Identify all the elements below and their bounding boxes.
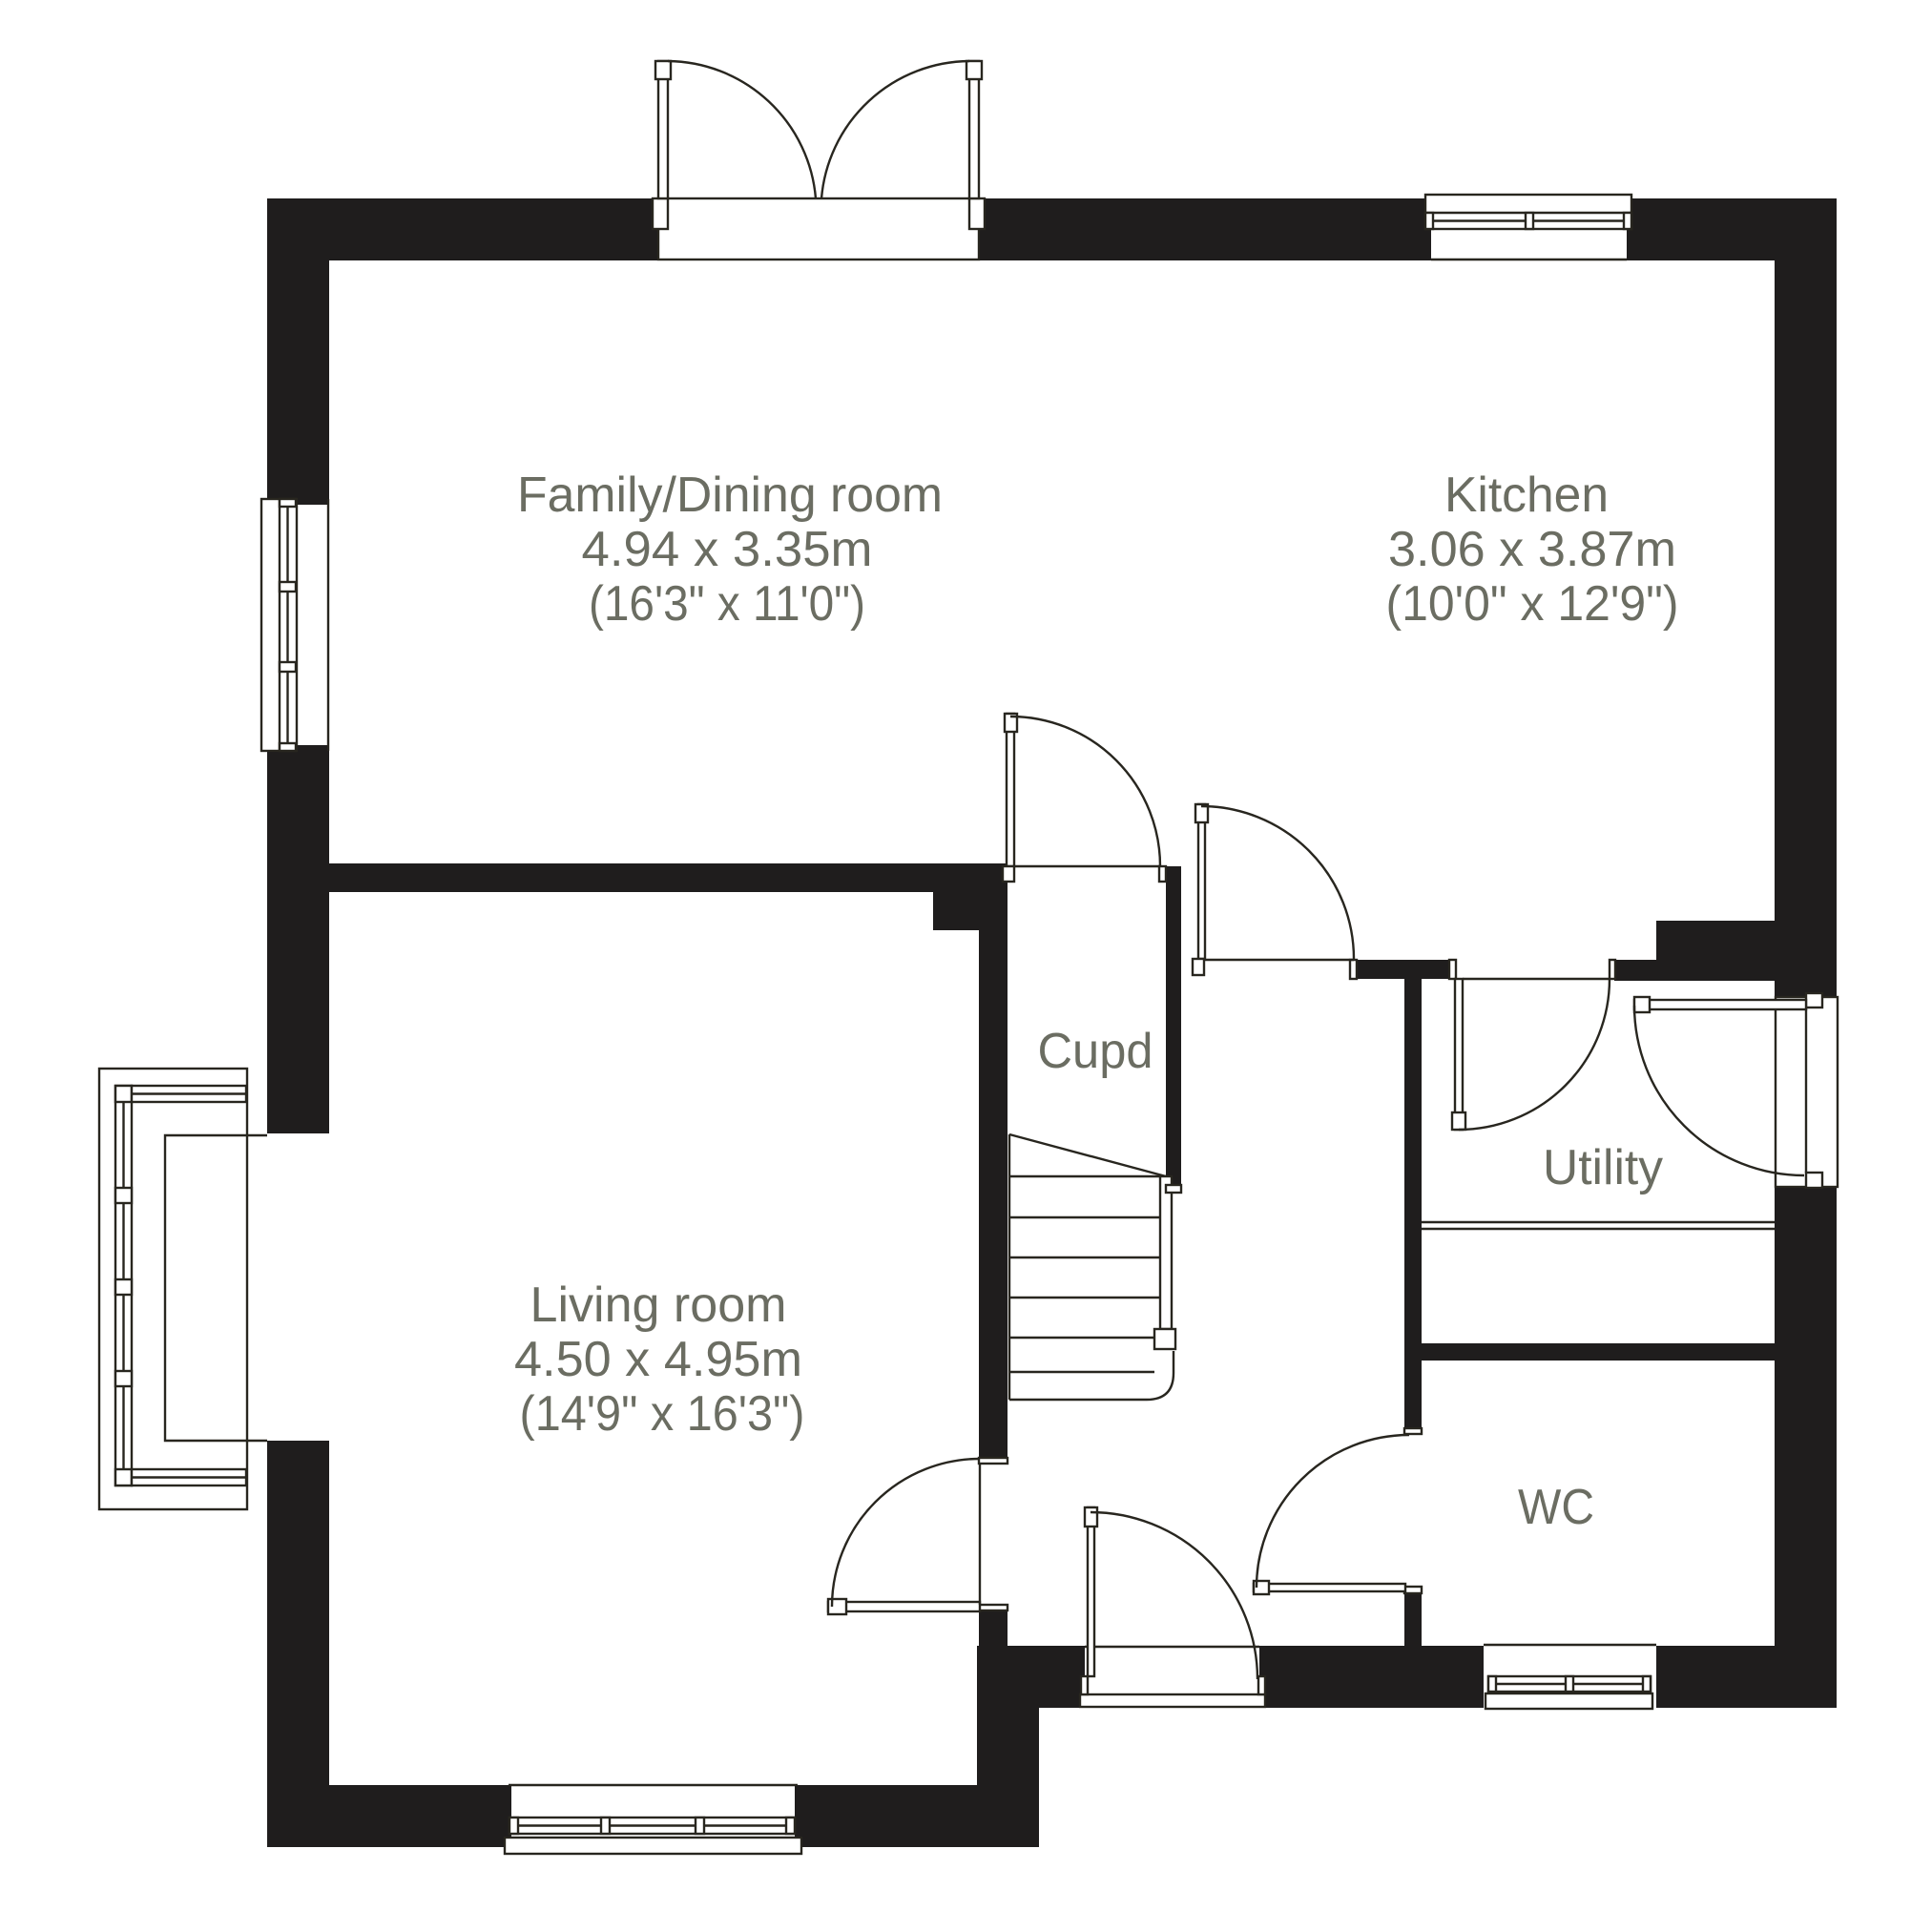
svg-text:4.50 x 4.95m: 4.50 x 4.95m: [514, 1332, 802, 1387]
svg-text:Family/Dining room: Family/Dining room: [517, 467, 943, 523]
svg-text:3.06 x 3.87m: 3.06 x 3.87m: [1388, 522, 1676, 577]
svg-text:Kitchen: Kitchen: [1444, 467, 1609, 523]
svg-text:4.94 x 3.35m: 4.94 x 3.35m: [582, 522, 873, 577]
svg-text:Living room: Living room: [530, 1278, 787, 1333]
svg-text:(16'3" x 11'0"): (16'3" x 11'0"): [589, 576, 865, 632]
svg-text:WC: WC: [1518, 1480, 1594, 1535]
svg-text:Utility: Utility: [1543, 1140, 1663, 1195]
svg-text:Cupd: Cupd: [1038, 1024, 1153, 1079]
svg-text:(14'9" x 16'3"): (14'9" x 16'3"): [520, 1386, 805, 1442]
svg-text:(10'0" x 12'9"): (10'0" x 12'9"): [1386, 576, 1679, 632]
